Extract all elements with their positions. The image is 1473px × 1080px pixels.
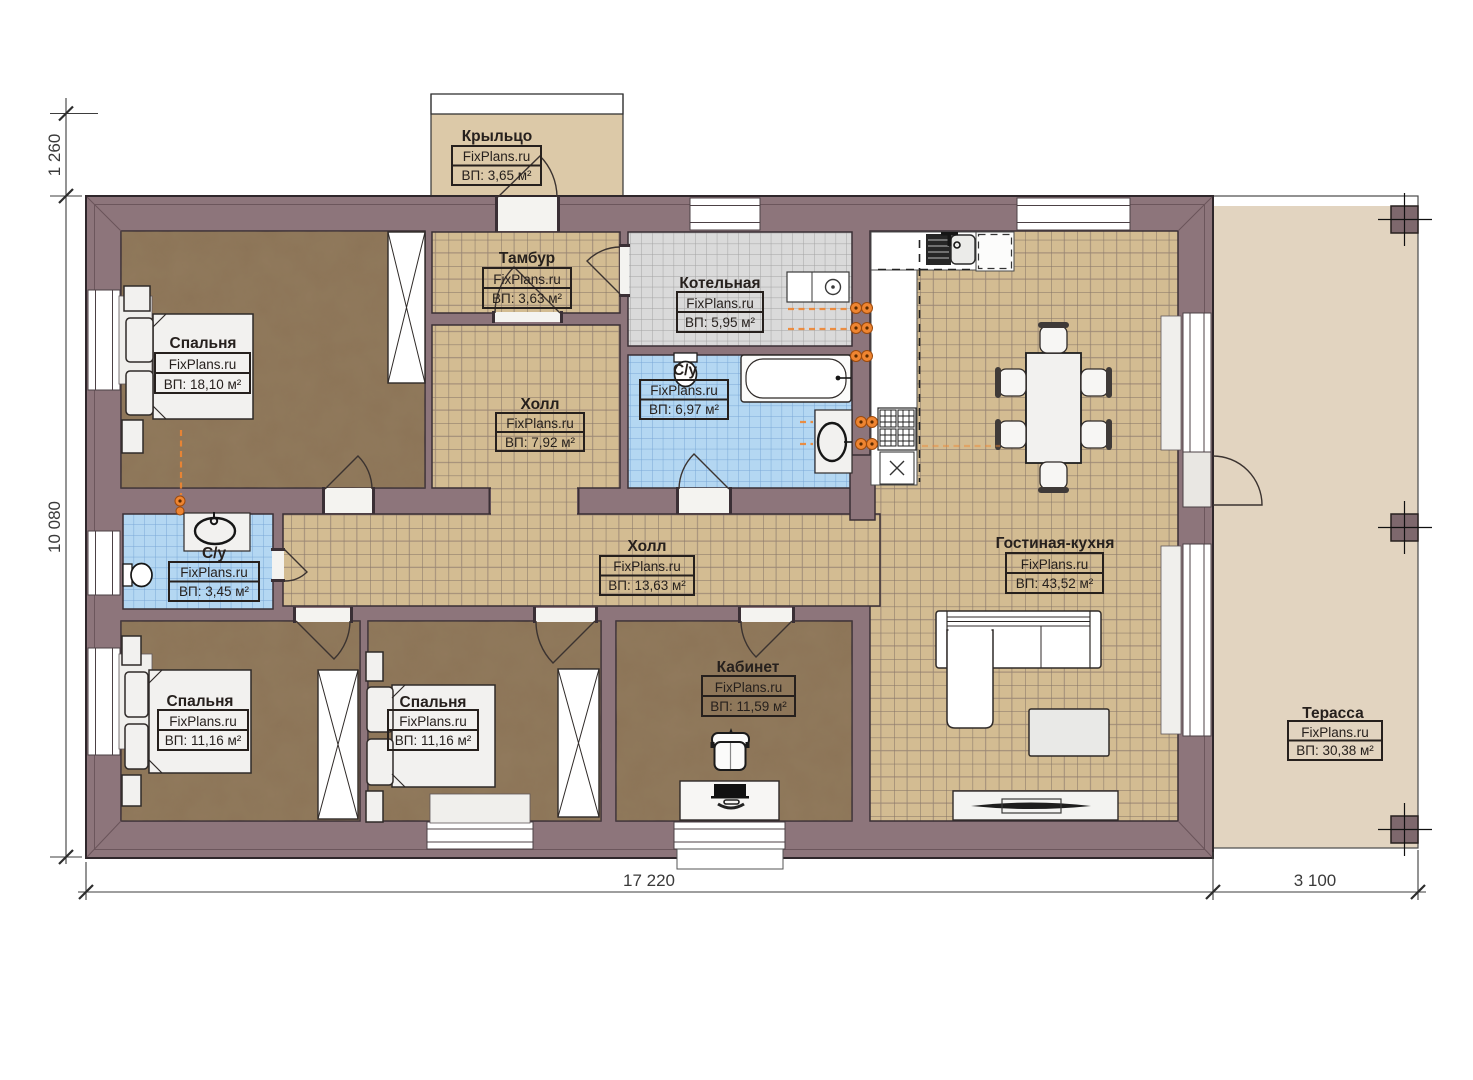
svg-text:Котельная: Котельная (679, 275, 760, 292)
svg-text:ВП: 13,63 м²: ВП: 13,63 м² (608, 578, 686, 593)
svg-text:ВП: 3,45 м²: ВП: 3,45 м² (179, 584, 250, 599)
svg-text:Спальня: Спальня (400, 694, 467, 711)
svg-text:С/у: С/у (673, 362, 698, 379)
svg-text:Кабинет: Кабинет (717, 659, 780, 676)
svg-text:Спальня: Спальня (170, 335, 237, 352)
svg-text:Крыльцо: Крыльцо (462, 128, 533, 145)
svg-text:FixPlans.ru: FixPlans.ru (650, 383, 718, 398)
svg-text:Холл: Холл (628, 538, 667, 555)
svg-text:ВП: 7,92 м²: ВП: 7,92 м² (505, 435, 576, 450)
svg-text:FixPlans.ru: FixPlans.ru (506, 416, 574, 431)
svg-text:ВП: 11,16 м²: ВП: 11,16 м² (395, 733, 472, 748)
svg-text:ВП: 30,38 м²: ВП: 30,38 м² (1296, 743, 1374, 758)
svg-text:FixPlans.ru: FixPlans.ru (399, 714, 467, 729)
svg-text:3 100: 3 100 (1294, 871, 1337, 890)
svg-text:Гостиная-кухня: Гостиная-кухня (996, 535, 1115, 552)
svg-text:FixPlans.ru: FixPlans.ru (1301, 725, 1369, 740)
svg-text:FixPlans.ru: FixPlans.ru (715, 680, 783, 695)
svg-text:ВП: 43,52 м²: ВП: 43,52 м² (1016, 576, 1094, 591)
svg-text:FixPlans.ru: FixPlans.ru (493, 272, 561, 287)
svg-text:Терасса: Терасса (1302, 705, 1364, 722)
svg-text:FixPlans.ru: FixPlans.ru (686, 296, 754, 311)
svg-text:FixPlans.ru: FixPlans.ru (169, 714, 237, 729)
svg-text:ВП: 3,65 м²: ВП: 3,65 м² (461, 168, 532, 183)
svg-text:FixPlans.ru: FixPlans.ru (180, 565, 248, 580)
svg-text:FixPlans.ru: FixPlans.ru (613, 559, 681, 574)
svg-text:ВП: 18,10 м²: ВП: 18,10 м² (164, 377, 242, 392)
svg-text:Тамбур: Тамбур (499, 250, 555, 267)
svg-text:ВП: 3,63 м²: ВП: 3,63 м² (492, 291, 563, 306)
svg-text:FixPlans.ru: FixPlans.ru (1021, 557, 1089, 572)
svg-text:1 260: 1 260 (45, 134, 64, 177)
svg-text:Спальня: Спальня (167, 693, 234, 710)
svg-text:10 080: 10 080 (45, 501, 64, 553)
svg-text:ВП: 6,97 м²: ВП: 6,97 м² (649, 402, 720, 417)
svg-text:FixPlans.ru: FixPlans.ru (169, 357, 237, 372)
svg-text:ВП: 11,59 м²: ВП: 11,59 м² (710, 699, 787, 714)
svg-text:Холл: Холл (521, 396, 560, 413)
svg-text:FixPlans.ru: FixPlans.ru (463, 149, 531, 164)
svg-text:ВП: 5,95 м²: ВП: 5,95 м² (685, 315, 756, 330)
svg-text:С/у: С/у (202, 545, 227, 562)
svg-text:ВП: 11,16 м²: ВП: 11,16 м² (165, 733, 242, 748)
svg-text:17 220: 17 220 (623, 871, 675, 890)
